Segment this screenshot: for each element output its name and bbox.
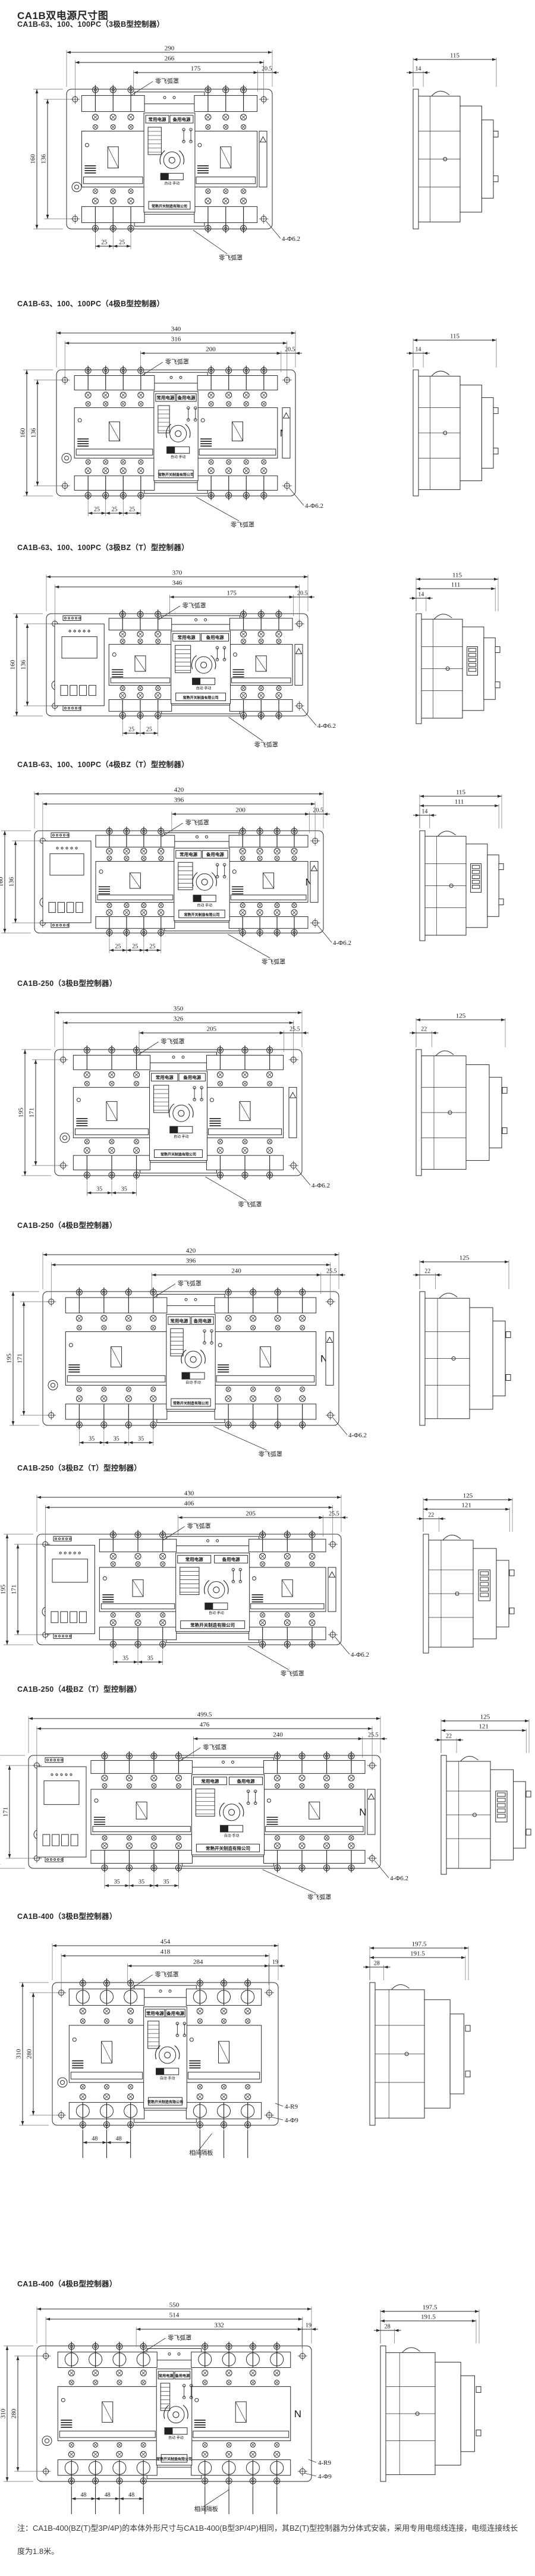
terminal-cell — [498, 1814, 505, 1818]
dim-arrow — [26, 492, 29, 496]
terminal-comb — [91, 1761, 192, 1774]
company-label: 常熟开关制造有限公司 — [206, 1845, 250, 1851]
dim-hole-span: 346 — [172, 580, 182, 587]
breaker-nameplate — [75, 1129, 148, 1135]
breaker-nameplate — [67, 1375, 165, 1382]
dim-depth: 14 — [421, 809, 427, 815]
neutral-label: N — [294, 2408, 301, 2420]
terminal-cell — [498, 1804, 505, 1807]
dim-arrow — [260, 61, 264, 64]
arc-cover-label: 零飞弧罩 — [259, 1450, 282, 1458]
breaker-nameplate — [101, 1604, 174, 1609]
dim-height: 310 — [0, 2408, 7, 2418]
dim-arrow — [420, 1261, 424, 1264]
breaker-nameplate — [59, 2431, 155, 2437]
side-rail-block — [493, 1321, 505, 1396]
dim-arrow — [311, 803, 315, 806]
dim-arrow — [36, 89, 39, 93]
mode-switch-knob — [170, 1126, 178, 1133]
dim-arrow — [32, 2111, 35, 2115]
dim-arrow — [137, 512, 141, 515]
dim-arrow — [87, 1192, 91, 1195]
dim-arrow — [329, 1506, 333, 1509]
dim-arrow — [441, 1720, 445, 1723]
company-label: 常熟开关制造有限公司 — [152, 204, 187, 209]
dim-arrow — [170, 596, 174, 599]
wire-loop — [402, 2348, 420, 2353]
terminal-cell — [480, 1577, 489, 1581]
din-clip — [499, 864, 503, 870]
dim-height: 310 — [15, 2049, 23, 2059]
din-clip — [509, 1608, 514, 1614]
section-heading: CA1B-400（3极B型控制器） — [17, 1910, 117, 1921]
company-label: 常熟开关制造有限公司 — [173, 1401, 209, 1406]
arc-cover-label: 零飞弧罩 — [155, 77, 179, 85]
side-rail-block — [484, 638, 495, 700]
dim-arrow — [283, 342, 287, 345]
reserve-power-label: 备用电源 — [172, 116, 190, 122]
side-mount-plate — [420, 831, 425, 941]
dim-arrow — [127, 949, 131, 952]
hole-spec: 4-Φ6.2 — [311, 1182, 330, 1189]
dim-arrow — [124, 1441, 128, 1444]
section-heading: CA1B-63、100、100PC（4极B型控制器） — [17, 297, 164, 309]
dim-height: 160 — [10, 659, 17, 670]
dim-arrow — [113, 245, 117, 248]
dim-arrow — [134, 71, 138, 74]
dim-arrow — [63, 1022, 67, 1025]
dim-arrow — [55, 586, 59, 589]
neutral-label: N — [359, 1807, 366, 1818]
bz-button — [61, 1834, 68, 1846]
dim-arrow — [492, 339, 496, 342]
dim-arrow — [36, 380, 39, 384]
dim-arrow — [21, 2121, 24, 2125]
dim-arrow — [104, 1441, 108, 1444]
normal-power-label: 常用电源 — [146, 2010, 164, 2016]
auto-manual-label: 自动 手动 — [196, 686, 212, 690]
dim-depth: 14 — [418, 592, 424, 598]
phase-barrier-label: 相间隔板 — [194, 2505, 218, 2513]
dim-pole-pitch: 35 — [138, 1436, 144, 1443]
normal-power-label: 常用电源 — [149, 116, 166, 122]
dim-arrow — [8, 1765, 11, 1770]
arc-cover-label: 零飞弧罩 — [178, 1280, 202, 1287]
dim-total-width: 550 — [169, 2302, 180, 2309]
dim-inner-span: 175 — [191, 65, 201, 73]
reserve-power-label: 备用电源 — [222, 1556, 240, 1562]
din-clip — [495, 682, 500, 688]
dim-arrow — [34, 793, 39, 796]
breaker-nameplate — [93, 1826, 190, 1832]
bz-button — [71, 1834, 78, 1846]
dim-arrow — [119, 512, 123, 515]
dim-depth: 28 — [374, 1961, 380, 1967]
dim-hole-span: 406 — [184, 1500, 194, 1507]
wire-loop — [439, 1293, 457, 1299]
dim-total-width: 290 — [165, 45, 175, 52]
leader-line — [335, 1637, 350, 1654]
breaker-nameplate — [71, 2072, 142, 2079]
leader-line — [248, 1646, 289, 1670]
dim-arrow — [12, 1292, 15, 1296]
dim-arrow — [193, 1738, 197, 1741]
dim-pole-pitch: 25 — [129, 507, 135, 513]
dim-pole-pitch: 25 — [112, 507, 118, 513]
arc-cover-label: 零飞弧罩 — [231, 521, 254, 529]
indicator-strip — [367, 1789, 375, 1834]
terminal-cell — [472, 880, 479, 884]
terminal-comb — [229, 835, 308, 847]
din-clip — [493, 131, 498, 137]
dim-arrow — [380, 2310, 385, 2313]
mode-switch-knob — [165, 2428, 172, 2434]
leader-line — [374, 1861, 389, 1878]
dim-inner-span: 175 — [226, 590, 237, 597]
dim-arrow — [154, 732, 158, 735]
indicator-strip — [295, 645, 303, 686]
dim-arrow — [29, 1717, 33, 1720]
dim-depth: 115 — [452, 572, 462, 579]
reserve-power-label: 备用电源 — [237, 1778, 255, 1784]
auto-manual-label: 自动 手动 — [209, 1611, 224, 1616]
terminal-cell — [498, 1798, 505, 1802]
dim-arrow — [12, 1421, 15, 1425]
mode-switch-knob — [182, 1372, 190, 1379]
bz-button — [76, 902, 83, 912]
din-clip — [476, 2386, 481, 2392]
bz-button — [80, 1611, 87, 1623]
bz-button — [61, 685, 68, 695]
dim-arrow — [370, 1947, 374, 1950]
arc-cover-top — [165, 833, 239, 841]
side-mount-plate — [380, 2346, 386, 2481]
section-10-drawing: 常用电源备用电源自动 手动常熟开关制造有限公司N5505143321931028… — [0, 2302, 481, 2515]
breaker-nameplate — [193, 2431, 289, 2437]
dim-arrow — [492, 58, 496, 61]
bz-button — [70, 685, 77, 695]
dim-total-width: 420 — [186, 1248, 196, 1255]
dim-hole-height: 171 — [17, 1353, 24, 1364]
dim-arrow — [113, 1661, 117, 1664]
dim-arrow — [129, 1884, 133, 1887]
dim-arrow — [505, 1261, 509, 1264]
dim-inner-span: 284 — [193, 1959, 203, 1966]
dim-total-width: 350 — [174, 1006, 184, 1013]
dim-arrow — [109, 245, 113, 248]
dim-arrow — [376, 1717, 380, 1720]
reserve-power-label: 备用电源 — [182, 1075, 201, 1080]
mode-switch-knob — [205, 1603, 213, 1610]
dim-depth: 111 — [455, 799, 464, 806]
dim-hole-span: 396 — [186, 1258, 196, 1265]
dim-pole-pitch: 35 — [89, 1436, 95, 1443]
side-mount-plate — [370, 1983, 375, 2125]
dim-arrow — [304, 576, 308, 579]
dim-total-width: 370 — [172, 570, 182, 577]
hole-spec: 4-Φ6.2 — [351, 1651, 369, 1658]
arc-cover-bottom — [182, 1856, 273, 1866]
dim-total-width: 499.5 — [197, 1711, 212, 1719]
dim-arrow — [127, 1965, 131, 1968]
dim-arrow — [157, 949, 161, 952]
breaker-nameplate — [266, 1826, 363, 1832]
dim-arrow — [34, 1060, 37, 1064]
dim-height: 195 — [0, 1584, 7, 1594]
auto-manual-label: 自动 手动 — [160, 2076, 175, 2081]
section-heading: CA1B-63、100、100PC（3极BZ（T）型控制器） — [17, 541, 189, 552]
dim-arrow — [79, 1441, 83, 1444]
dim-edge: 20.5 — [313, 808, 323, 814]
dim-arrow — [265, 1955, 269, 1958]
hole-spec: 4-Φ9 — [285, 2117, 298, 2124]
arc-cover-label: 零飞弧罩 — [168, 2334, 191, 2342]
dim-arrow — [112, 1192, 116, 1195]
section-2-drawing: 常用电源备用电源自动 手动常熟开关制造有限公司N34031620020.5160… — [20, 326, 499, 529]
breaker-nameplate — [199, 449, 276, 455]
indicator-strip — [289, 1088, 297, 1138]
dim-arrow — [149, 1441, 153, 1444]
arc-cover-label: 零飞弧罩 — [219, 254, 243, 262]
dim-arrow — [32, 1993, 35, 1997]
dim-arrow — [26, 370, 29, 374]
terminal-comb — [191, 2352, 291, 2367]
din-clip — [493, 448, 498, 454]
bz-button — [51, 1611, 58, 1623]
dim-arrow — [109, 949, 114, 952]
dimension-drawings: 常用电源备用电源自动 手动常熟开关制造有限公司29026617520.51601… — [0, 0, 535, 2576]
side-rail-block — [513, 1782, 525, 1848]
terminal-cell — [480, 1588, 489, 1591]
dim-total-width: 454 — [160, 1939, 171, 1946]
dim-arrow — [43, 1254, 47, 1256]
dim-arrow — [498, 795, 502, 798]
leader-line — [213, 1427, 267, 1450]
dim-height: 195 — [6, 1353, 13, 1364]
dim-arrow — [24, 1171, 27, 1176]
breaker-nameplate — [208, 1129, 281, 1135]
din-clip — [476, 2430, 481, 2436]
section-heading: CA1B-250（3极B型控制器） — [17, 977, 117, 988]
dim-arrow — [102, 512, 106, 515]
side-mount-plate — [441, 1755, 446, 1874]
dim-arrow — [37, 2308, 41, 2311]
dim-arrow — [174, 1884, 178, 1887]
indicator-strip — [326, 1332, 333, 1386]
dim-edge: 19 — [272, 1959, 278, 1966]
company-label: 常熟开关制造有限公司 — [156, 2457, 192, 2462]
leader-line — [302, 708, 316, 725]
dim-arrow — [319, 793, 323, 796]
dim-hole-height: 136 — [40, 154, 48, 164]
breaker-nameplate — [76, 449, 153, 455]
dim-pole-pitch: 35 — [121, 1186, 127, 1193]
section-heading: CA1B-63、100、100PC（3极B型控制器） — [17, 18, 164, 29]
bz-button — [89, 685, 96, 695]
din-clip — [502, 1127, 507, 1133]
leader-line — [228, 934, 270, 958]
terminal-cell — [498, 1793, 505, 1796]
dim-arrow — [119, 2498, 124, 2500]
dim-pole-pitch: 48 — [92, 2136, 97, 2143]
dim-pole-pitch: 35 — [122, 1655, 128, 1662]
dim-pole-pitch: 25 — [128, 727, 134, 733]
dim-inner-span: 240 — [273, 1732, 283, 1739]
terminal-comb — [74, 376, 155, 390]
section-heading: CA1B-63、100、100PC（4极BZ（T）型控制器） — [17, 758, 189, 769]
side-mount-plate — [416, 614, 421, 724]
dim-arrow — [102, 2141, 106, 2144]
dim-arrow — [83, 2141, 87, 2144]
dim-arrow — [152, 1274, 156, 1277]
section-heading: CA1B-250（4极BZ（T）型控制器） — [17, 1683, 141, 1694]
dim-arrow — [472, 2320, 476, 2323]
dim-inner-span: 332 — [214, 2322, 224, 2329]
terminal-cell — [480, 1593, 489, 1597]
dim-arrow — [420, 805, 424, 808]
dim-hole-height: 171 — [2, 1807, 10, 1817]
dim-arrow — [139, 2498, 143, 2500]
dim-arrow — [15, 614, 18, 618]
bz-button — [67, 902, 74, 912]
dim-arrow — [464, 1947, 468, 1950]
bz-button — [49, 902, 55, 912]
arc-cover-bottom — [165, 922, 239, 931]
dim-inner-span: 205 — [246, 1510, 256, 1518]
arc-cover-top — [162, 615, 240, 624]
dim-arrow — [127, 2141, 131, 2144]
arc-cover-label: 零飞弧罩 — [155, 1971, 179, 1978]
dim-hole-height: 280 — [26, 2049, 33, 2059]
arc-cover-bottom — [162, 705, 240, 714]
side-rail-block — [496, 1560, 509, 1627]
dim-depth: 28 — [385, 2324, 391, 2330]
dim-pole-pitch: 48 — [105, 2492, 111, 2499]
dim-edge: 25.5 — [368, 1732, 379, 1739]
dim-pole-pitch: 25 — [146, 727, 152, 733]
side-front-block — [466, 1064, 489, 1160]
auto-manual-label: 自动 手动 — [174, 1134, 189, 1139]
wire-loop — [436, 1051, 454, 1056]
arc-cover-top — [134, 92, 204, 104]
dim-pole-pitch: 35 — [147, 1655, 153, 1662]
arc-cover-label: 零飞弧罩 — [238, 1201, 262, 1208]
arc-cover-label: 零飞弧罩 — [161, 1038, 185, 1045]
side-front-block — [460, 106, 481, 212]
din-clip — [465, 2071, 470, 2077]
terminal-cell — [468, 668, 476, 672]
dim-hole-span: 514 — [169, 2312, 180, 2319]
dim-arrow — [36, 482, 39, 486]
normal-power-label: 常用电源 — [156, 1075, 174, 1080]
dim-arrow — [4, 831, 7, 835]
dim-pole-pitch: 25 — [101, 240, 107, 246]
side-mount-plate — [413, 89, 418, 229]
dim-arrow — [420, 795, 424, 798]
wire-loop — [432, 371, 449, 376]
dim-arrow — [23, 1411, 26, 1415]
controller-panel — [150, 1071, 207, 1161]
dim-arrow — [416, 1019, 420, 1022]
dim-arrow — [17, 1544, 20, 1548]
dim-arrow — [106, 2141, 111, 2144]
dim-inner-span: 205 — [207, 1026, 217, 1033]
dim-edge: 25.5 — [289, 1026, 300, 1033]
dim-inner-span: 200 — [235, 807, 246, 814]
arc-cover-label: 零飞弧罩 — [187, 1522, 211, 1530]
company-label: 常熟开关制造有限公司 — [160, 1152, 196, 1157]
section-heading: CA1B-250（4极B型控制器） — [17, 1219, 117, 1230]
leader-line — [205, 1177, 246, 1201]
dim-arrow — [159, 1661, 163, 1664]
dim-arrow — [326, 1264, 331, 1267]
dim-arrow — [122, 949, 127, 952]
din-clip — [465, 2025, 470, 2031]
dim-arrow — [505, 1508, 509, 1511]
hole-spec: 4-Φ6.2 — [333, 940, 351, 947]
side-front-block — [435, 2362, 461, 2465]
dim-depth: 111 — [451, 582, 461, 589]
terminal-cell — [480, 1582, 489, 1586]
dim-arrow — [423, 1508, 427, 1511]
arc-cover-label: 零飞弧罩 — [254, 741, 278, 749]
terminal-cell — [468, 663, 476, 667]
dim-pole-pitch: 25 — [94, 507, 100, 513]
dim-pole-pitch: 25 — [149, 944, 155, 950]
section-4-drawing: 常用电源备用电源自动 手动常熟开关制造有限公司N42039620020.5160… — [0, 787, 503, 966]
dim-arrow — [416, 588, 420, 590]
breaker-nameplate — [97, 895, 173, 900]
dim-arrow — [150, 1884, 154, 1887]
dim-depth: 125 — [456, 1013, 466, 1020]
wire-loop — [443, 1535, 461, 1540]
wire-loop — [432, 91, 449, 96]
side-front-block — [424, 2000, 450, 2108]
breaker-nameplate — [111, 678, 169, 683]
arc-cover-label: 零飞弧罩 — [203, 1743, 226, 1751]
terminal-cell — [472, 875, 479, 879]
dim-arrow — [307, 2308, 311, 2311]
dim-hole-height: 136 — [20, 659, 27, 670]
dim-arrow — [291, 332, 295, 335]
dim-arrow — [133, 1192, 137, 1195]
dim-edge: 25.5 — [329, 1511, 339, 1518]
dim-arrow — [522, 1729, 526, 1732]
dim-arrow — [46, 2318, 50, 2321]
terminal-comb — [197, 376, 278, 390]
normal-power-label: 常用电源 — [178, 634, 196, 640]
dim-depth: 115 — [450, 333, 460, 340]
dim-depth: 197.5 — [423, 2304, 438, 2311]
leader-line — [199, 2134, 212, 2150]
bz-display — [44, 1781, 79, 1805]
breaker-nameplate — [216, 1375, 314, 1382]
terminal-cell — [472, 885, 479, 889]
terminal-comb — [65, 1298, 167, 1313]
dim-arrow — [413, 339, 417, 342]
dim-arrow — [140, 949, 144, 952]
auto-manual-label: 自动 手动 — [171, 454, 186, 459]
side-front-block — [470, 1308, 493, 1409]
dim-arrow — [370, 1956, 374, 1959]
dim-depth: 22 — [421, 1026, 427, 1033]
dim-height: 160 — [30, 154, 37, 164]
company-label: 常熟开关制造有限公司 — [147, 2100, 183, 2104]
dim-hole-span: 266 — [165, 55, 175, 62]
dim-arrow — [56, 332, 61, 335]
dim-arrow — [6, 2477, 9, 2481]
dim-hole-height: 136 — [8, 877, 15, 887]
